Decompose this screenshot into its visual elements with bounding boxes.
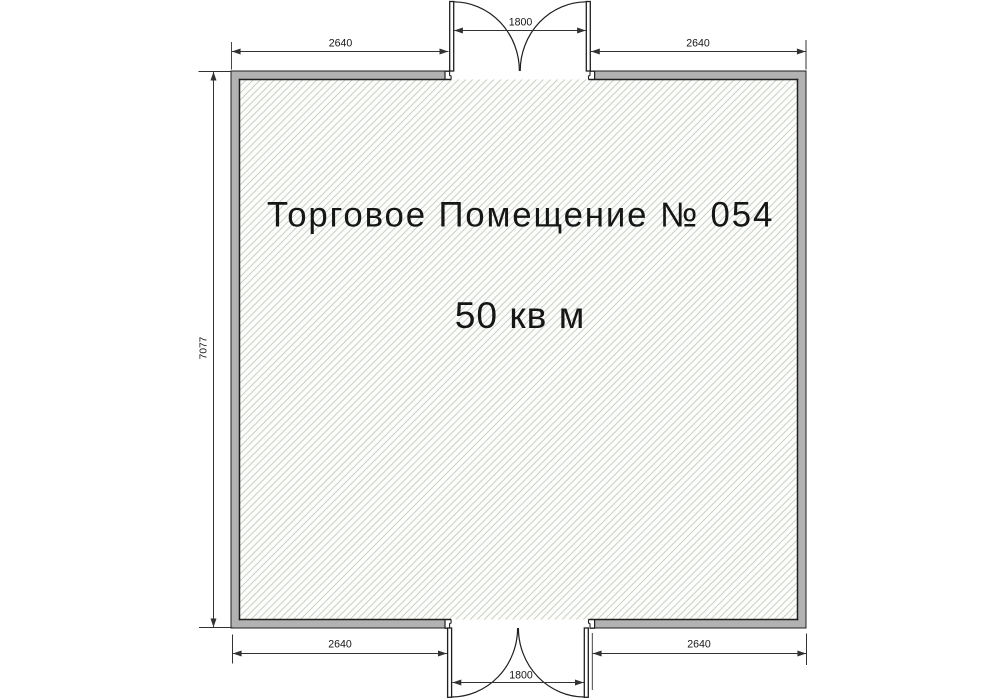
svg-text:2640: 2640 xyxy=(687,639,711,651)
svg-text:1800: 1800 xyxy=(509,669,533,681)
svg-text:2640: 2640 xyxy=(328,639,352,651)
svg-text:7077: 7077 xyxy=(199,336,210,359)
svg-text:2640: 2640 xyxy=(686,37,710,49)
svg-text:Торговое Помещение № 054: Торговое Помещение № 054 xyxy=(267,196,774,235)
svg-text:2640: 2640 xyxy=(329,37,353,49)
svg-text:50 кв м: 50 кв м xyxy=(455,294,586,336)
svg-text:1800: 1800 xyxy=(509,17,533,29)
